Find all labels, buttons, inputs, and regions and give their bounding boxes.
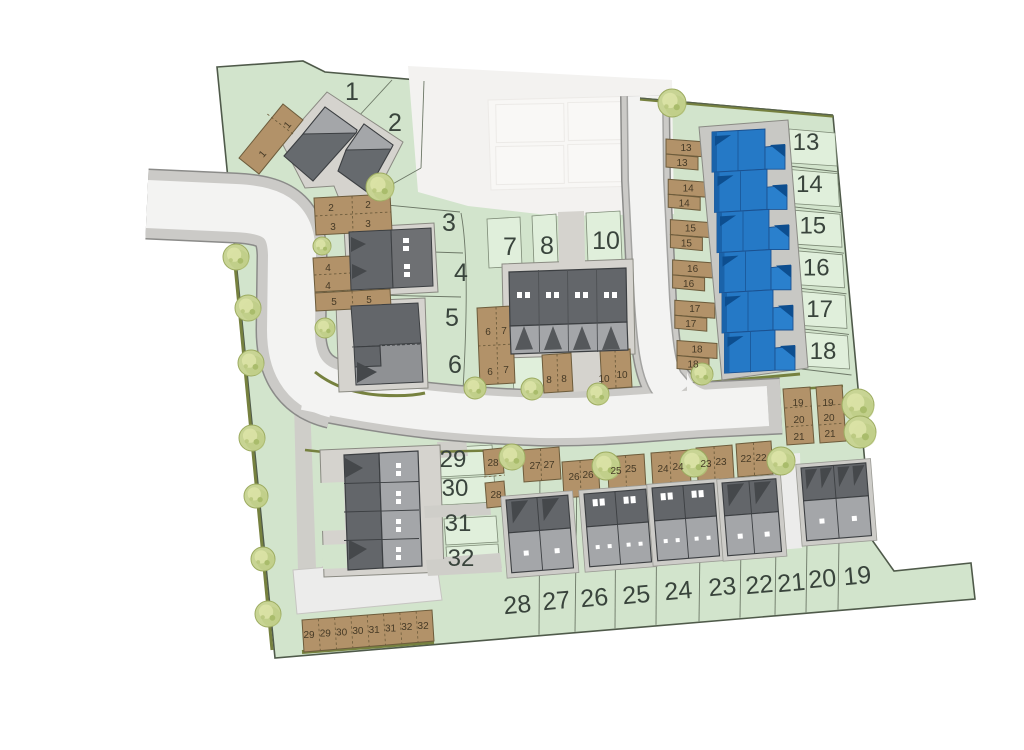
svg-text:7: 7 xyxy=(501,326,507,337)
svg-text:8: 8 xyxy=(546,375,552,386)
svg-text:8: 8 xyxy=(540,232,554,260)
svg-text:18: 18 xyxy=(810,338,837,365)
svg-text:28: 28 xyxy=(487,458,499,469)
svg-text:22: 22 xyxy=(744,570,774,600)
svg-text:2: 2 xyxy=(365,200,371,211)
svg-text:22: 22 xyxy=(740,454,752,465)
svg-text:18: 18 xyxy=(691,345,703,356)
svg-text:14: 14 xyxy=(683,183,695,194)
svg-text:31: 31 xyxy=(369,625,381,636)
svg-text:32: 32 xyxy=(401,622,413,633)
svg-text:18: 18 xyxy=(687,360,699,371)
svg-text:21: 21 xyxy=(824,429,836,440)
svg-text:30: 30 xyxy=(442,475,469,502)
svg-text:17: 17 xyxy=(689,304,701,315)
svg-text:30: 30 xyxy=(352,626,364,637)
svg-text:24: 24 xyxy=(663,576,693,606)
svg-text:4: 4 xyxy=(325,281,331,292)
svg-text:24: 24 xyxy=(672,462,684,473)
svg-text:27: 27 xyxy=(529,461,541,472)
svg-text:26: 26 xyxy=(579,583,609,613)
svg-text:14: 14 xyxy=(796,171,823,198)
svg-text:10: 10 xyxy=(598,374,610,385)
svg-text:16: 16 xyxy=(687,264,699,275)
svg-text:23: 23 xyxy=(715,457,727,468)
svg-text:32: 32 xyxy=(418,621,430,632)
svg-text:19: 19 xyxy=(842,561,872,591)
svg-text:20: 20 xyxy=(823,413,835,424)
svg-text:6: 6 xyxy=(485,327,491,338)
svg-text:20: 20 xyxy=(793,415,805,426)
svg-text:31: 31 xyxy=(445,510,472,537)
svg-text:2: 2 xyxy=(388,109,402,137)
svg-text:29: 29 xyxy=(320,629,332,640)
svg-text:3: 3 xyxy=(365,219,371,230)
svg-text:24: 24 xyxy=(657,464,669,475)
svg-text:10: 10 xyxy=(616,370,628,381)
svg-text:5: 5 xyxy=(366,295,372,306)
svg-text:20: 20 xyxy=(807,564,837,594)
svg-text:21: 21 xyxy=(793,432,805,443)
svg-text:16: 16 xyxy=(803,254,830,281)
svg-text:28: 28 xyxy=(502,590,532,620)
svg-text:7: 7 xyxy=(503,365,509,376)
svg-text:17: 17 xyxy=(806,296,833,323)
svg-text:23: 23 xyxy=(707,572,737,602)
svg-text:15: 15 xyxy=(681,239,693,250)
svg-text:25: 25 xyxy=(621,580,651,610)
svg-text:27: 27 xyxy=(541,586,571,616)
svg-text:15: 15 xyxy=(799,213,826,240)
svg-text:2: 2 xyxy=(328,203,334,214)
svg-text:27: 27 xyxy=(543,460,555,471)
svg-text:22: 22 xyxy=(755,453,767,464)
svg-text:6: 6 xyxy=(448,351,462,379)
svg-text:3: 3 xyxy=(442,209,456,237)
svg-text:13: 13 xyxy=(676,158,688,169)
svg-text:32: 32 xyxy=(448,545,475,572)
svg-text:4: 4 xyxy=(325,263,331,274)
svg-text:29: 29 xyxy=(303,630,315,641)
svg-text:5: 5 xyxy=(445,304,459,332)
svg-text:23: 23 xyxy=(700,459,712,470)
svg-text:8: 8 xyxy=(561,374,567,385)
svg-text:1: 1 xyxy=(345,78,359,106)
svg-text:31: 31 xyxy=(385,624,397,635)
svg-text:19: 19 xyxy=(792,398,804,409)
svg-text:19: 19 xyxy=(822,398,834,409)
svg-text:26: 26 xyxy=(582,470,594,481)
svg-text:14: 14 xyxy=(679,198,691,209)
svg-text:13: 13 xyxy=(680,143,692,154)
svg-text:7: 7 xyxy=(503,233,517,261)
svg-text:15: 15 xyxy=(685,224,697,235)
svg-text:28: 28 xyxy=(490,490,502,501)
svg-text:29: 29 xyxy=(440,446,467,473)
svg-text:6: 6 xyxy=(487,367,493,378)
svg-text:26: 26 xyxy=(568,472,580,483)
svg-text:16: 16 xyxy=(683,279,695,290)
svg-text:25: 25 xyxy=(610,466,622,477)
svg-text:13: 13 xyxy=(793,129,820,156)
svg-text:4: 4 xyxy=(454,259,468,287)
svg-text:30: 30 xyxy=(336,627,348,638)
svg-text:17: 17 xyxy=(685,319,697,330)
svg-text:25: 25 xyxy=(625,464,637,475)
svg-text:3: 3 xyxy=(330,222,336,233)
svg-text:10: 10 xyxy=(592,227,620,255)
svg-text:21: 21 xyxy=(776,568,806,598)
svg-text:5: 5 xyxy=(331,297,337,308)
